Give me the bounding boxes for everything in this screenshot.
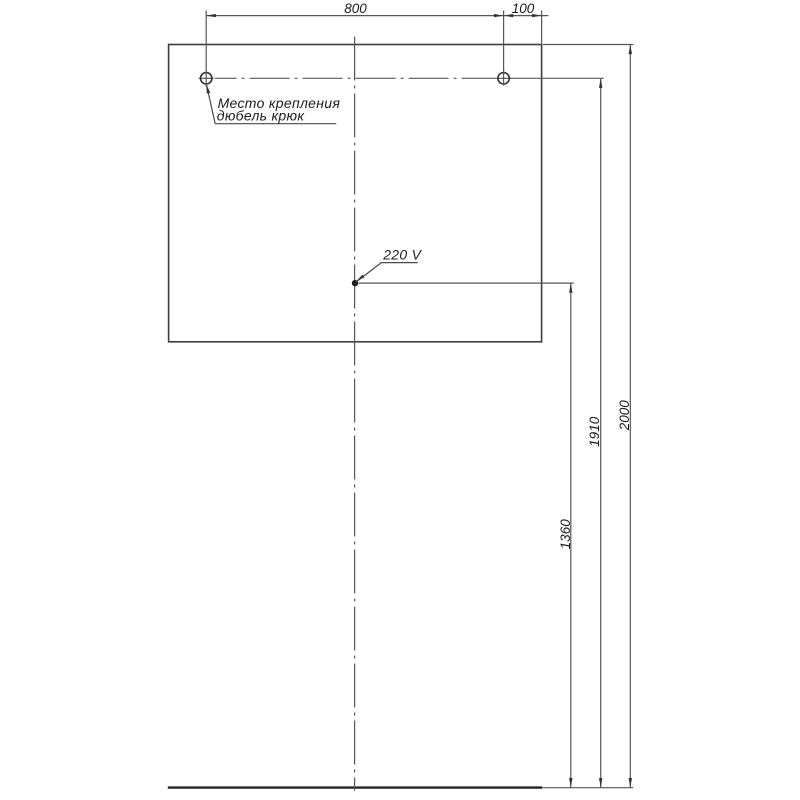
svg-text:1360: 1360: [558, 519, 573, 550]
svg-text:800: 800: [344, 1, 367, 16]
svg-text:220 V: 220 V: [382, 247, 422, 263]
svg-text:2000: 2000: [617, 400, 632, 432]
svg-text:100: 100: [512, 1, 535, 16]
svg-text:1910: 1910: [587, 416, 602, 447]
svg-text:дюбель крюк: дюбель крюк: [217, 108, 306, 124]
